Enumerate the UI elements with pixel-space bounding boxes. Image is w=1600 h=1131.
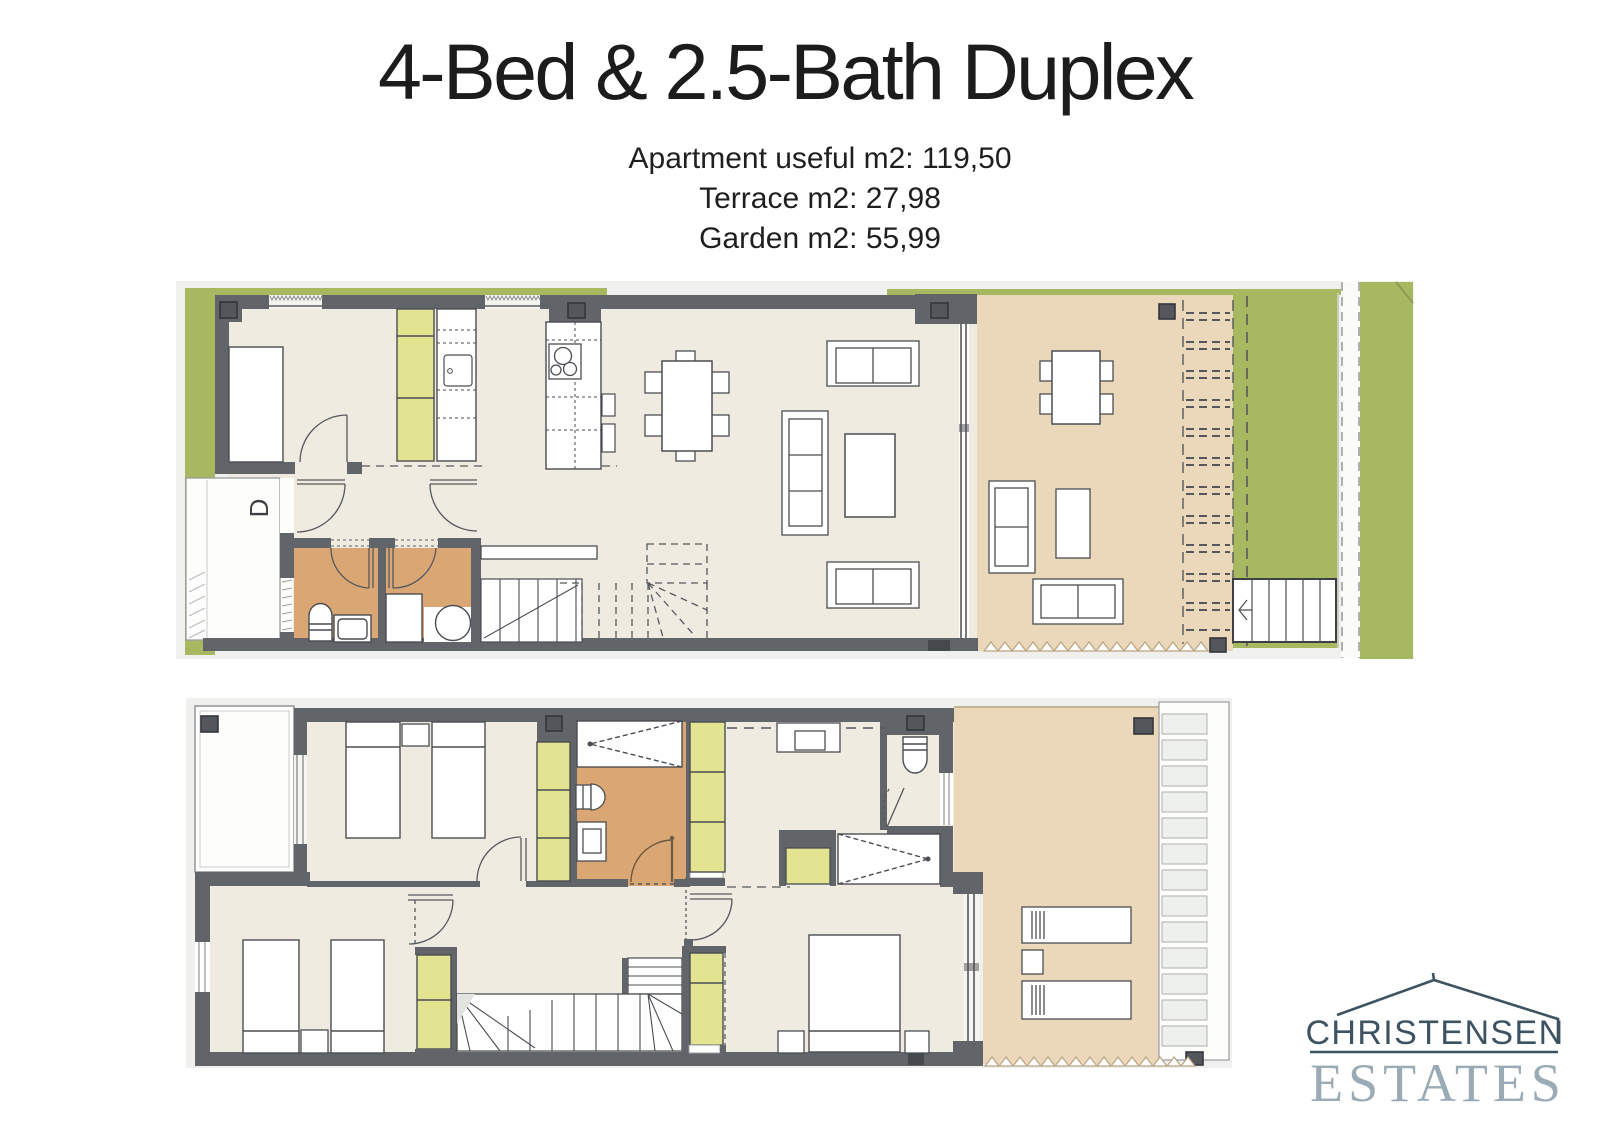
svg-text:CHRISTENSEN: CHRISTENSEN <box>1305 1014 1564 1052</box>
svg-text:D: D <box>244 499 274 518</box>
svg-text:ESTATES: ESTATES <box>1310 1053 1566 1113</box>
